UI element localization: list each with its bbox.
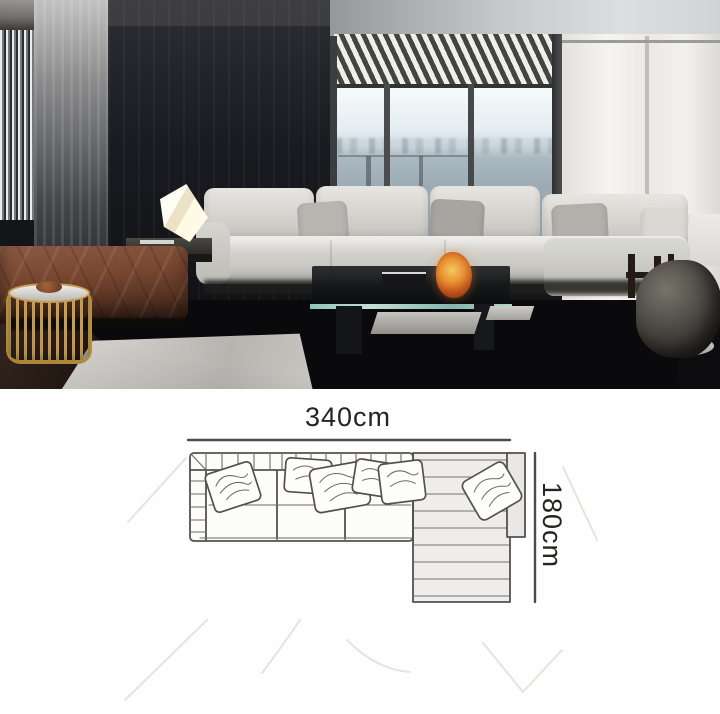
balcony-post — [419, 156, 423, 186]
product-image: 340cm 180cm — [0, 0, 720, 714]
coffee-table-shelf — [486, 306, 535, 320]
tray — [140, 240, 174, 244]
living-room-photo — [0, 0, 720, 389]
curtain-ledge — [0, 0, 36, 30]
louvered-pergola — [334, 34, 562, 88]
metallic-curtain — [0, 0, 36, 220]
city-skyline — [336, 138, 560, 154]
coffee-table-leg — [336, 306, 362, 354]
coffee-table-shelf — [370, 312, 481, 334]
lounge-chair — [636, 260, 720, 358]
books — [382, 272, 426, 288]
table-ornament — [36, 281, 62, 293]
amber-glass-ornament — [436, 252, 472, 298]
balcony-post — [366, 156, 371, 190]
width-dimension-label: 340cm — [288, 402, 408, 433]
sofa-plan-drawing — [0, 389, 720, 714]
depth-dimension-label: 180cm — [539, 475, 567, 575]
wall-top-shadow — [108, 0, 334, 26]
balcony-rail — [338, 155, 470, 157]
panel-rail — [562, 40, 720, 43]
